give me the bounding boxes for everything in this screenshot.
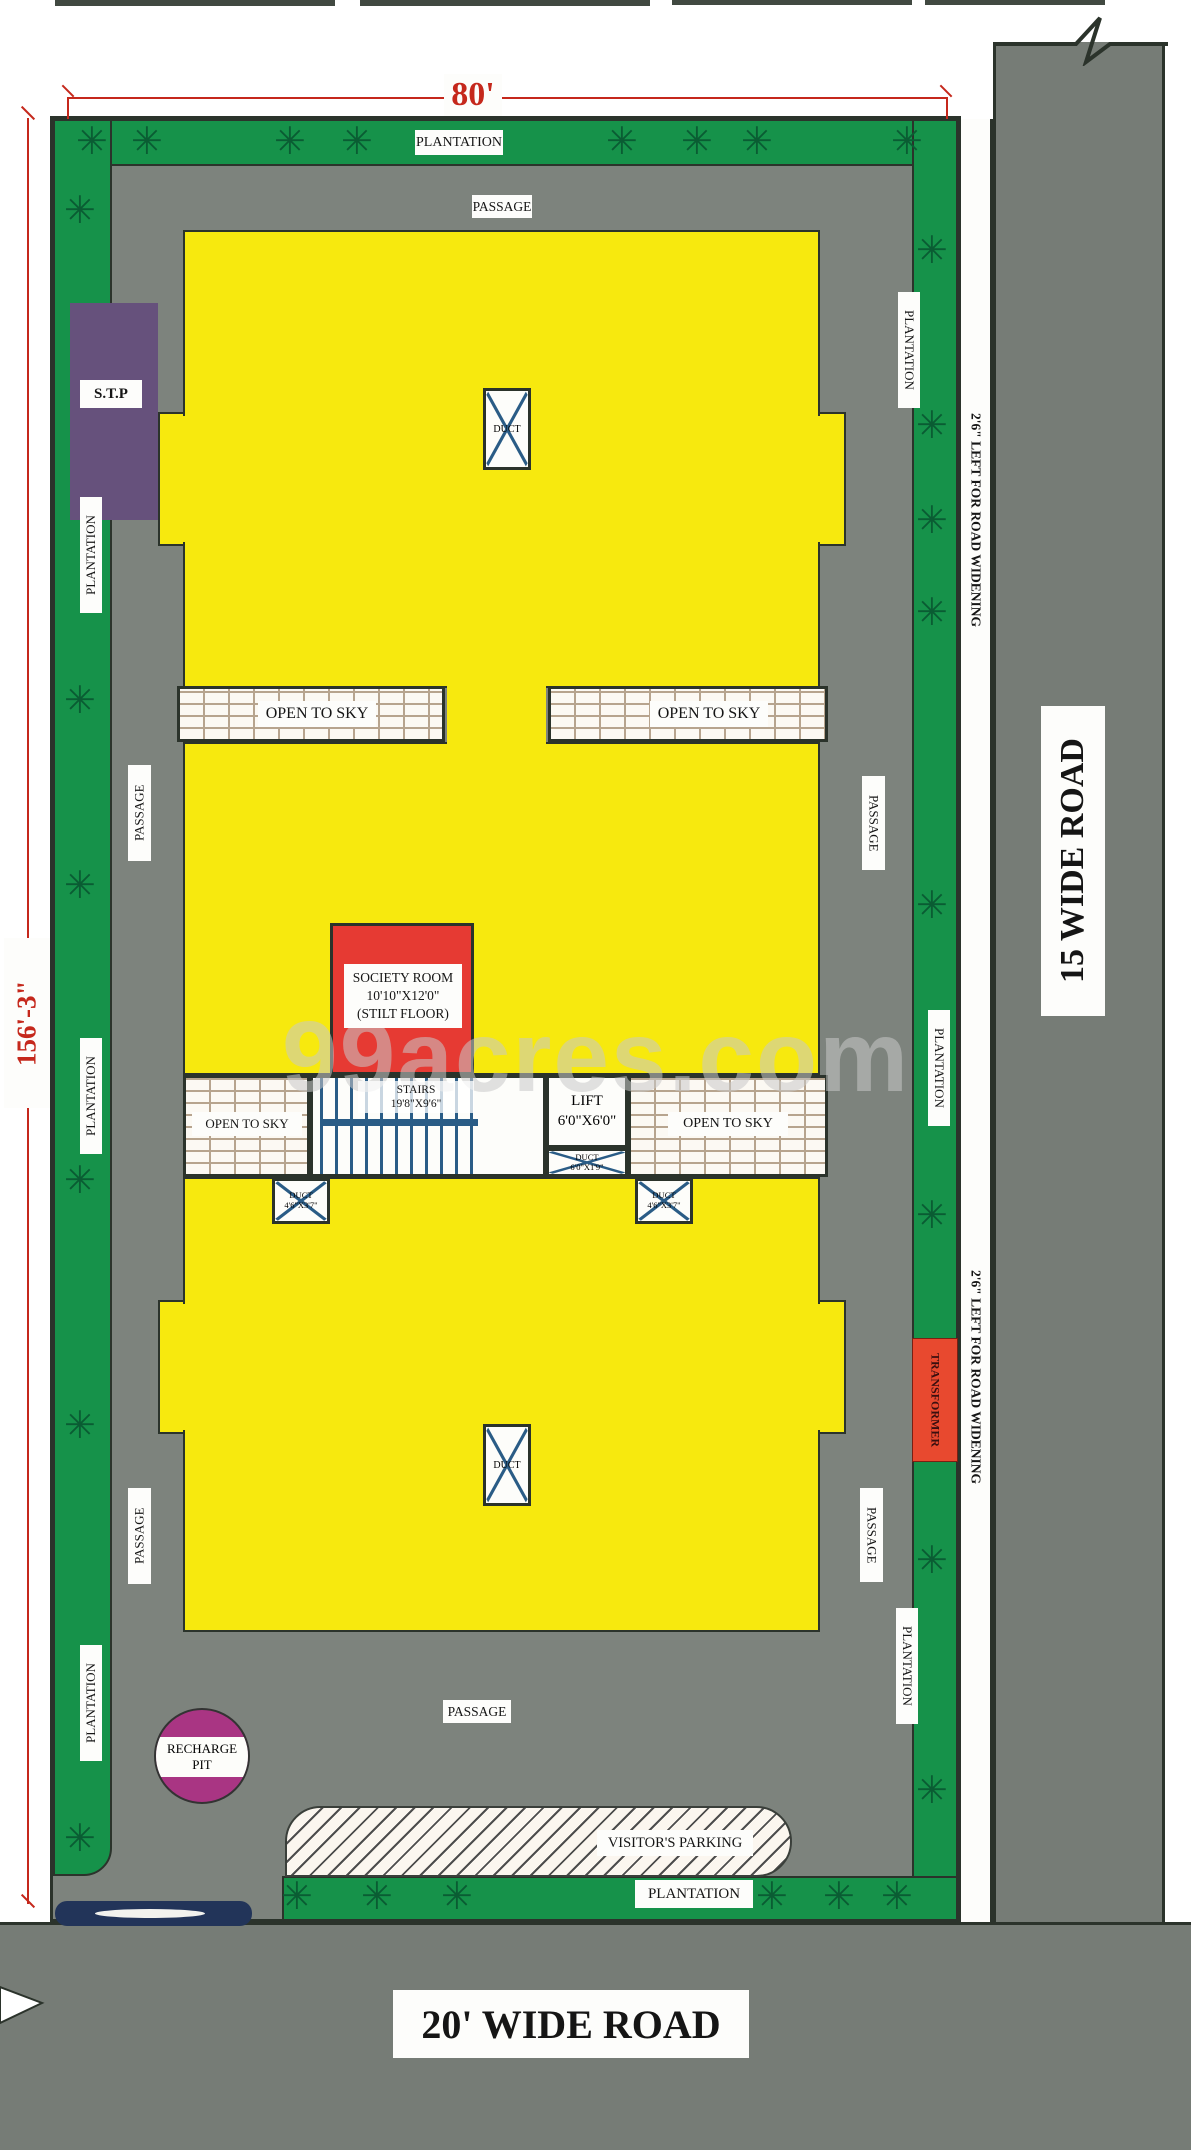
- plant-icon: ✳: [891, 122, 923, 160]
- plant-icon: ✳: [916, 231, 948, 269]
- plant-icon: ✳: [756, 1877, 788, 1915]
- plantation-strip-top: [53, 119, 958, 166]
- passage-label-right: PASSAGE: [862, 776, 885, 870]
- plant-icon: ✳: [916, 886, 948, 924]
- plant-icon: ✳: [131, 122, 163, 160]
- stairs-size: 19'8"X9'6": [391, 1097, 442, 1111]
- plant-icon: ✳: [916, 1541, 948, 1579]
- plant-icon: ✳: [361, 1877, 393, 1915]
- plant-icon: ✳: [64, 1406, 96, 1444]
- seam-patch: [181, 1304, 188, 1430]
- entrance-gate: [55, 1901, 252, 1926]
- plant-icon: ✳: [64, 1819, 96, 1857]
- plant-icon: ✳: [881, 1877, 913, 1915]
- passage-label-right: PASSAGE: [860, 1488, 883, 1582]
- passage-label-left: PASSAGE: [128, 1488, 151, 1584]
- gate-detail: [95, 1909, 205, 1918]
- duct-size: 4'6"X3'7": [284, 1201, 317, 1211]
- society-room-floor: (STILT FLOOR): [357, 1005, 449, 1023]
- plant-icon: ✳: [681, 122, 713, 160]
- plant-icon: ✳: [916, 1196, 948, 1234]
- plant-icon: ✳: [916, 593, 948, 631]
- road-widening-note: 2'6" LEFT FOR ROAD WIDENING: [960, 1258, 991, 1496]
- seam-patch: [815, 1304, 822, 1430]
- stp-label: S.T.P: [80, 380, 142, 408]
- duct-label: DUCT: [493, 424, 520, 435]
- scan-artifact: [55, 0, 335, 6]
- plant-icon: ✳: [916, 501, 948, 539]
- open-to-sky-label: OPEN TO SKY: [668, 1112, 788, 1136]
- road-break-icon: [0, 1985, 46, 2025]
- plant-icon: ✳: [741, 122, 773, 160]
- lift-duct-box: DUCT 6'0"X1'9": [546, 1148, 628, 1177]
- transformer-label: TRANSFORMER: [928, 1353, 943, 1447]
- recharge-pit-line2: PIT: [192, 1757, 212, 1773]
- scan-artifact: [925, 0, 1105, 5]
- plantation-label-bottom: PLANTATION: [635, 1880, 753, 1908]
- plant-icon: ✳: [606, 122, 638, 160]
- plant-icon: ✳: [281, 1877, 313, 1915]
- dimension-tick: [940, 85, 953, 98]
- block-connector: [447, 684, 546, 746]
- society-room-size: 10'10"X12'0": [367, 987, 440, 1005]
- seam-patch: [815, 416, 822, 542]
- building-notch: [818, 1300, 846, 1434]
- bottom-road-label: 20' WIDE ROAD: [393, 1990, 749, 2058]
- plant-icon: ✳: [64, 681, 96, 719]
- duct-box: DUCT 4'6"X3'7": [272, 1178, 330, 1224]
- open-to-sky-label: OPEN TO SKY: [258, 701, 376, 727]
- plantation-label-left: PLANTATION: [80, 497, 102, 613]
- society-room-name: SOCIETY ROOM: [353, 969, 453, 987]
- plantation-label-right: PLANTATION: [928, 1010, 950, 1126]
- plant-icon: ✳: [76, 122, 108, 160]
- road-widening-note: 2'6" LEFT FOR ROAD WIDENING: [960, 398, 991, 643]
- road-widening-strip: [958, 119, 993, 1922]
- plant-icon: ✳: [64, 191, 96, 229]
- building-notch: [818, 412, 846, 546]
- plant-icon: ✳: [916, 1771, 948, 1809]
- duct-box: DUCT 4'6"X3'7": [635, 1178, 693, 1224]
- passage-label-top: PASSAGE: [472, 195, 532, 218]
- stp-tank: [70, 303, 158, 520]
- seam-patch: [181, 416, 188, 542]
- plantation-label-left: PLANTATION: [80, 1038, 102, 1154]
- duct-size: 4'6"X3'7": [647, 1201, 680, 1211]
- passage-label-left: PASSAGE: [128, 765, 151, 861]
- plantation-label-right: PLANTATION: [896, 1608, 918, 1724]
- plantation-label-top: PLANTATION: [415, 130, 503, 155]
- plantation-label-right: PLANTATION: [898, 292, 920, 408]
- stairs-landing: [322, 1119, 478, 1126]
- site-plan: 2'6" LEFT FOR ROAD WIDENING 2'6" LEFT FO…: [0, 0, 1191, 2150]
- plant-icon: ✳: [823, 1877, 855, 1915]
- recharge-pit: RECHARGE PIT: [154, 1708, 250, 1804]
- duct-box: DUCT: [483, 1424, 531, 1506]
- stairs-name: STAIRS: [397, 1083, 436, 1097]
- open-to-sky-label: OPEN TO SKY: [650, 701, 768, 727]
- building-block-bottom: [183, 1177, 820, 1632]
- scan-artifact: [360, 0, 650, 6]
- right-road-label: 15 WIDE ROAD: [1041, 706, 1105, 1016]
- dimension-top-value: 80': [444, 74, 502, 116]
- stairs-label: STAIRS 19'8"X9'6": [358, 1081, 474, 1113]
- dimension-tick: [62, 85, 75, 98]
- transformer: TRANSFORMER: [912, 1338, 958, 1462]
- plant-icon: ✳: [274, 122, 306, 160]
- visitors-parking-label: VISITOR'S PARKING: [597, 1830, 753, 1856]
- passage-label-bottom: PASSAGE: [443, 1700, 511, 1723]
- open-to-sky-label: OPEN TO SKY: [192, 1112, 302, 1136]
- dimension-line-top: [68, 97, 948, 99]
- duct-label: DUCT: [493, 1460, 520, 1471]
- plant-icon: ✳: [916, 406, 948, 444]
- scan-artifact: [672, 0, 912, 5]
- road-break-icon: [988, 14, 1173, 66]
- dimension-tick: [67, 97, 69, 119]
- recharge-pit-line1: RECHARGE: [167, 1741, 237, 1757]
- plant-icon: ✳: [64, 866, 96, 904]
- plantation-label-left: PLANTATION: [80, 1645, 102, 1761]
- duct-size: 6'0"X1'9": [570, 1163, 603, 1172]
- duct-box: DUCT: [483, 388, 531, 470]
- dimension-tick: [946, 97, 948, 119]
- plant-icon: ✳: [341, 122, 373, 160]
- society-room-label: SOCIETY ROOM 10'10"X12'0" (STILT FLOOR): [344, 964, 462, 1028]
- plant-icon: ✳: [441, 1877, 473, 1915]
- dimension-left-value: 156'-3": [4, 938, 50, 1108]
- plant-icon: ✳: [64, 1161, 96, 1199]
- recharge-pit-label: RECHARGE PIT: [156, 1737, 248, 1777]
